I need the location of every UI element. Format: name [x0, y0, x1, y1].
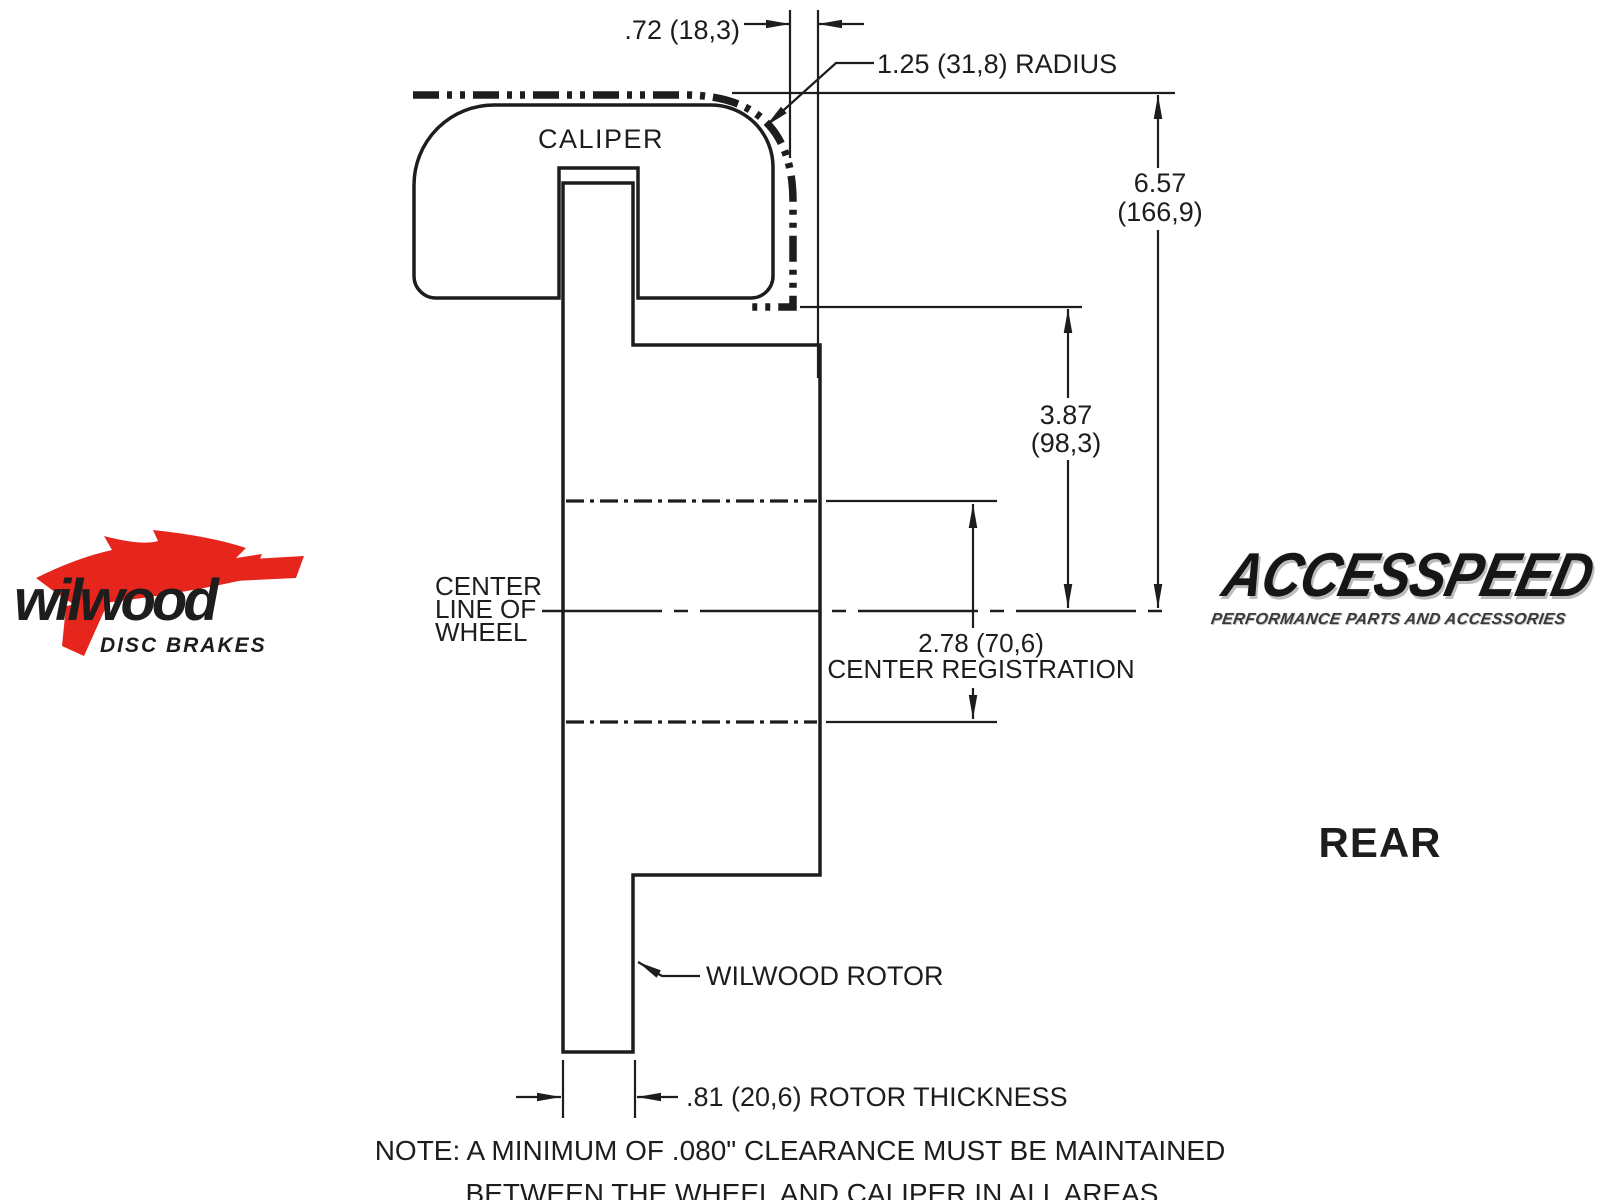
wilwood-tagline: DISC BRAKES — [100, 634, 267, 657]
rotor-hat-body — [563, 183, 820, 1052]
note-line2: BETWEEN THE WHEEL AND CALIPER IN ALL ARE… — [466, 1178, 1159, 1200]
rotor-leader-arrow — [638, 962, 700, 976]
caliper-label: CALIPER — [538, 124, 664, 154]
dim-radius-text: 1.25 (31,8) RADIUS — [877, 49, 1117, 79]
dim-registration-label: CENTER REGISTRATION — [827, 654, 1134, 684]
dim-mount-height-mm: (98,3) — [1031, 428, 1102, 458]
accesspeed-wordmark: ACCESSPEED — [1217, 543, 1599, 608]
dim-overall-height-mm: (166,9) — [1117, 197, 1203, 227]
drawing-canvas: CALIPER .72 (18,3) 1.25 (31,8) RADIUS 6.… — [0, 0, 1600, 1200]
dim-mount-height-in: 3.87 — [1040, 400, 1093, 430]
dim-rotor-thickness-text: .81 (20,6) ROTOR THICKNESS — [686, 1082, 1068, 1112]
dim-top-offset-text: .72 (18,3) — [624, 15, 740, 45]
centerline-label-line3: WHEEL — [435, 617, 527, 647]
radius-leader-arrow — [766, 63, 874, 126]
wilwood-wordmark: wilwood — [14, 568, 220, 633]
rotor-leader-label: WILWOOD ROTOR — [706, 961, 944, 991]
accesspeed-logo: ACCESSPEED PERFORMANCE PARTS AND ACCESSO… — [1192, 543, 1584, 629]
view-label-rear: REAR — [1318, 819, 1441, 866]
wilwood-logo: wilwood DISC BRAKES — [14, 526, 324, 660]
accesspeed-tagline: PERFORMANCE PARTS AND ACCESSORIES — [1209, 611, 1566, 629]
wilwood-logo-art: wilwood DISC BRAKES — [14, 526, 324, 660]
note-line1: NOTE: A MINIMUM OF .080" CLEARANCE MUST … — [375, 1135, 1226, 1166]
dim-overall-height-in: 6.57 — [1134, 168, 1187, 198]
